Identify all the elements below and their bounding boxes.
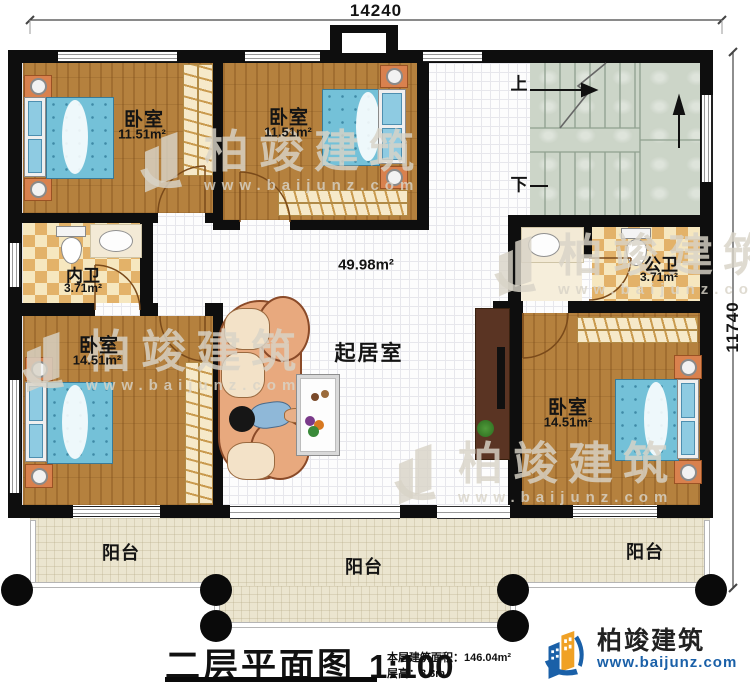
wall-bottom-seg (657, 505, 713, 518)
window-top-tl (58, 51, 177, 62)
wall-bottom-seg (400, 505, 437, 518)
wardrobe (185, 362, 213, 504)
toilet-tank (621, 228, 651, 239)
bed-headboard (378, 89, 406, 164)
floor-area-label: 本层建筑面积： (387, 652, 464, 664)
flowers (308, 426, 319, 437)
nightstand (25, 357, 53, 381)
window-bottom-bl (73, 506, 160, 517)
tv-screen (497, 347, 505, 409)
stairwell-floor (530, 63, 700, 215)
room-area-bath-public: 3.71m² (640, 270, 678, 284)
window-top-hall (423, 51, 482, 62)
bed-headboard (24, 97, 46, 177)
dish (321, 390, 329, 398)
brand-logo-icon (543, 628, 589, 680)
sofa-cushion (227, 442, 275, 480)
stairs-up-label: 上 (511, 70, 528, 95)
person-head (229, 406, 255, 432)
column (1, 574, 33, 606)
brand-name: 柏竣建筑 (597, 628, 737, 654)
bed-sheet (62, 100, 88, 174)
window-top-tm (245, 51, 320, 62)
room-area-bath-inner: 3.71m² (64, 281, 102, 295)
room-label-balcony-center: 阳台 (345, 553, 383, 579)
balcony-ext-railing-bottom (214, 622, 516, 628)
balcony-center-extension-floor (217, 586, 513, 626)
room-area-bedroom-bl: 14.51m² (73, 353, 121, 368)
nightstand (380, 65, 408, 88)
column (497, 610, 529, 642)
nightstand (25, 464, 53, 488)
nightstand (674, 355, 702, 379)
pillow (681, 383, 695, 418)
sofa-cushion (221, 352, 265, 398)
wall-bottom-seg (160, 505, 230, 518)
washbasin (99, 230, 133, 252)
coffee-table-top (300, 378, 336, 452)
wardrobe (278, 190, 408, 216)
nightstand (380, 166, 408, 189)
room-label-living: 起居室 (335, 337, 404, 367)
dimension-top: 14240 (350, 1, 402, 21)
wall-bath-inner-bottom (140, 303, 158, 316)
bed-headboard (25, 382, 47, 462)
sofa-cushion (224, 308, 270, 350)
floor-area-value: 146.04m² (464, 652, 511, 664)
nightstand (24, 178, 52, 201)
pillow (29, 386, 43, 421)
column (200, 574, 232, 606)
column (695, 574, 727, 606)
pillow (28, 101, 42, 136)
pillow (382, 93, 402, 125)
wall-bedroom-tm-bottom (290, 220, 429, 230)
washbasin (528, 233, 560, 257)
bed-sheet (644, 382, 668, 456)
room-area-bedroom-tl: 11.51m² (118, 127, 166, 142)
dish (311, 393, 319, 401)
floor-info: 本层建筑面积：146.04m² 层高：3.3m (387, 650, 511, 682)
window-left-bedroom-bl (9, 380, 21, 493)
room-area-living: 49.98m² (338, 257, 394, 274)
balcony-railing-left (30, 520, 36, 586)
wall-bath-inner-bottom (8, 303, 95, 316)
wall-bedroom-br-left (508, 313, 522, 505)
stairs-down-label: 下 (511, 171, 528, 196)
title-underline (165, 677, 377, 682)
room-label-balcony-left: 阳台 (102, 539, 140, 565)
pillow (681, 421, 695, 456)
window-bottom-br (573, 506, 657, 517)
wall-bath-public-bottom (568, 301, 713, 313)
wall-alcove-left (508, 227, 521, 301)
wall-stairs-bottom (508, 215, 713, 227)
nightstand (24, 75, 52, 98)
pillow (28, 139, 42, 174)
room-label-balcony-right: 阳台 (626, 538, 664, 564)
wall-bedroom-tm-bottom (213, 220, 240, 230)
pillow (29, 424, 43, 459)
bed-headboard (677, 379, 699, 459)
nightstand (674, 460, 702, 484)
dimension-right: 11740 (723, 301, 743, 352)
balcony-sliding-door (230, 506, 400, 519)
balcony-sliding-door (437, 506, 510, 519)
pillow (382, 128, 402, 160)
brand-logo: 柏竣建筑 www.baijunz.com (543, 628, 737, 680)
bed-sheet (356, 92, 380, 161)
floor-height-value: 3.3m (420, 668, 445, 680)
toilet-tank (56, 226, 86, 237)
wall-bottom-seg (510, 505, 573, 518)
wall-under-bedroom-tl (8, 213, 158, 223)
bed-sheet (62, 385, 88, 459)
balcony-railing-bottom-left (30, 582, 217, 588)
balcony-railing-bottom-right (513, 582, 710, 588)
wardrobe (577, 317, 698, 343)
column (497, 574, 529, 606)
floor-height-label: 层高： (387, 668, 420, 680)
bay-window-inner (342, 33, 386, 53)
wall-bedroom-tm-right (417, 63, 429, 230)
brand-url: www.baijunz.com (597, 654, 737, 671)
window-left-bath (9, 243, 21, 287)
room-area-bedroom-tm: 11.51m² (264, 125, 312, 140)
wall-bedrooms-divider (213, 63, 223, 223)
window-right-stairwell (701, 95, 713, 182)
floor-plan-canvas: 柏竣建筑 www.baijunz.com 柏竣建筑 www.baijunz.co… (0, 0, 750, 694)
wall-bottom-seg (8, 505, 73, 518)
wardrobe (183, 64, 213, 176)
room-area-bedroom-br: 14.51m² (544, 415, 592, 430)
plant (477, 420, 494, 437)
